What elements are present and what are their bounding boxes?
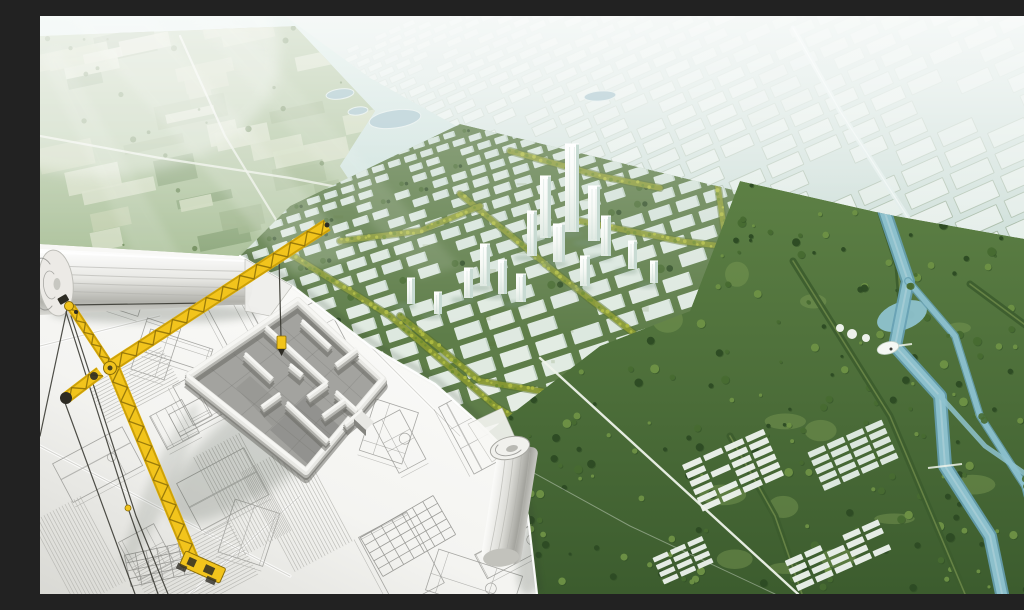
aerial-city-photomontage [40,16,1024,594]
scene-svg [40,16,1024,594]
crane-hoist-pulley [125,505,131,511]
crane-turntable [104,362,117,375]
